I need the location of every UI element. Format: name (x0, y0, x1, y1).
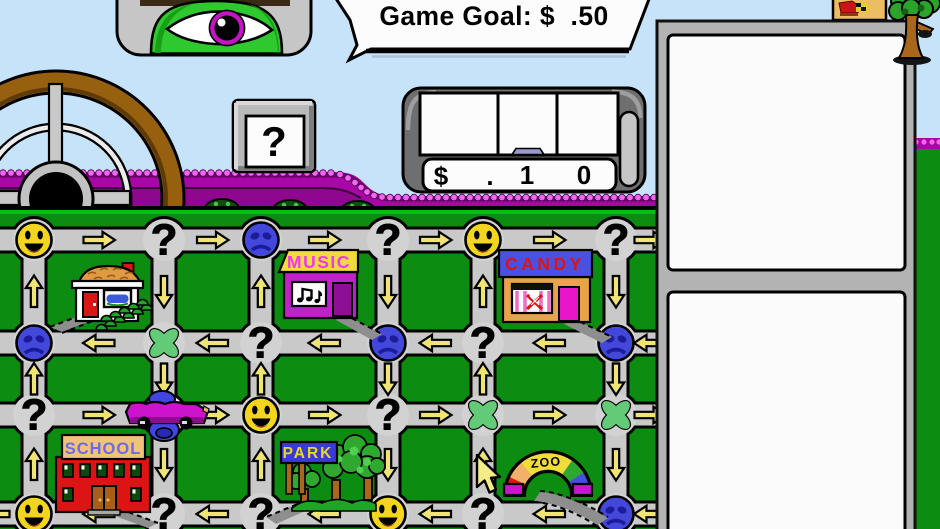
svg-text:1: 1 (520, 160, 534, 190)
svg-text:0: 0 (577, 160, 591, 190)
svg-text:CANDY: CANDY (505, 254, 585, 274)
svg-text:Game Goal: $ .50: Game Goal: $ .50 (379, 1, 608, 31)
svg-text:.: . (486, 161, 493, 191)
svg-text:$: $ (434, 161, 449, 191)
svg-text:MUSIC: MUSIC (287, 252, 351, 272)
svg-text:ZOO: ZOO (530, 454, 562, 471)
svg-text:PARK: PARK (283, 445, 334, 462)
svg-text:?: ? (261, 118, 287, 165)
svg-text:SCHOOL: SCHOOL (65, 440, 142, 458)
